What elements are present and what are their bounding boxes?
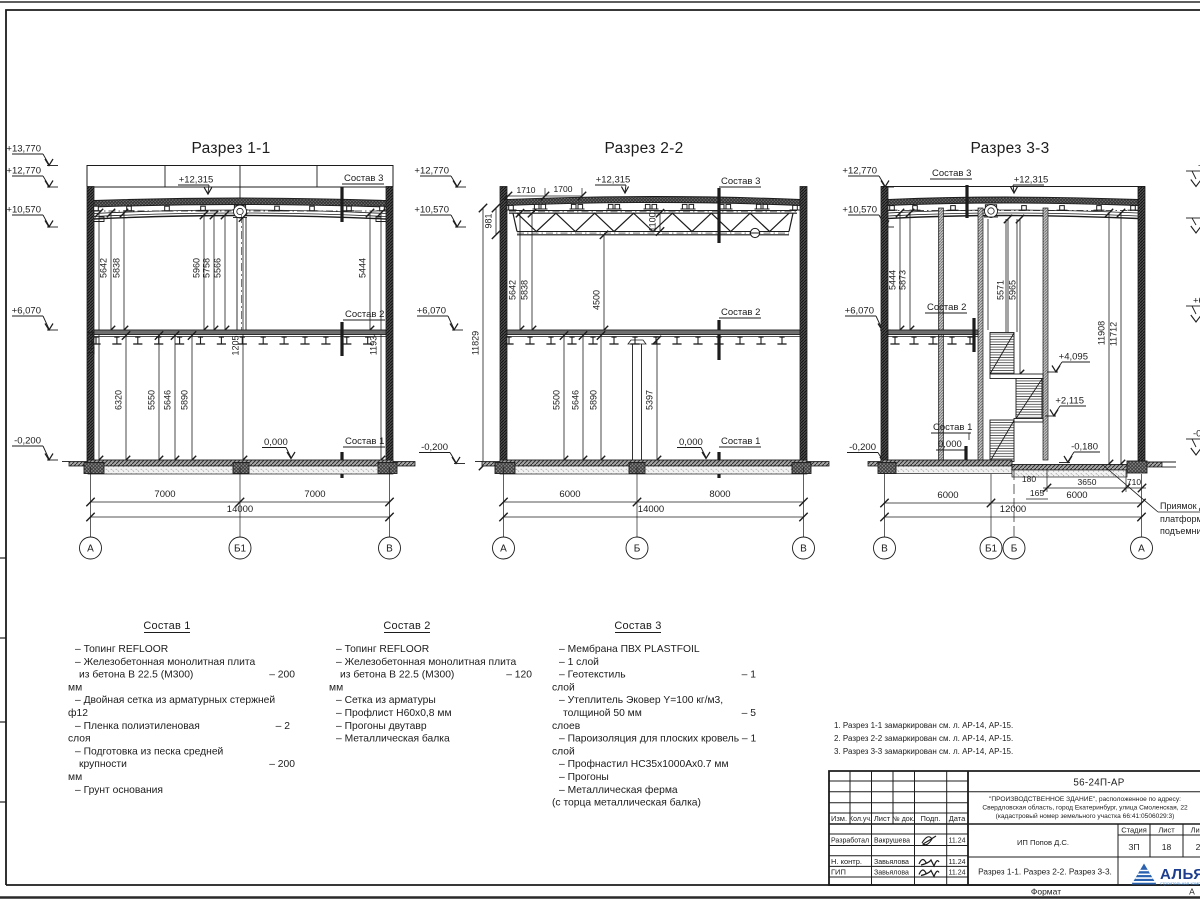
svg-text:6000: 6000: [937, 490, 958, 501]
svg-text:В: В: [800, 543, 807, 554]
svg-text:Дата: Дата: [949, 814, 966, 823]
svg-text:5646: 5646: [571, 390, 581, 410]
svg-text:+6,070: +6,070: [12, 306, 41, 317]
svg-text:12000: 12000: [1000, 504, 1026, 515]
svg-text:– Профлист Н60х0,8 мм: – Профлист Н60х0,8 мм: [336, 707, 452, 719]
svg-text:Состав 1: Состав 1: [345, 436, 384, 447]
svg-text:5397: 5397: [645, 390, 655, 410]
svg-text:5642: 5642: [99, 258, 109, 278]
svg-text:3650: 3650: [1078, 477, 1097, 487]
svg-text:5571: 5571: [996, 280, 1006, 300]
svg-text:Лист: Лист: [1158, 826, 1175, 835]
svg-text:слоев: слоев: [552, 721, 581, 732]
svg-text:Разрез 1-1. Разрез 2-2. Разрез: Разрез 1-1. Разрез 2-2. Разрез 3-3.: [978, 867, 1112, 877]
svg-text:2. Разрез 2-2 замаркирован см.: 2. Разрез 2-2 замаркирован см. л. АР-14,…: [834, 734, 1013, 743]
svg-text:слоя: слоя: [68, 734, 91, 745]
svg-text:5838: 5838: [112, 258, 122, 278]
svg-text:А: А: [1189, 887, 1195, 897]
svg-text:5890: 5890: [589, 390, 599, 410]
svg-text:+12,770: +12,770: [842, 166, 877, 177]
svg-text:1100: 1100: [648, 212, 658, 231]
svg-text:– Пленка полиэтиленовая: – Пленка полиэтиленовая: [75, 721, 200, 732]
svg-text:Лист: Лист: [874, 814, 891, 823]
svg-text:180: 180: [1022, 474, 1036, 484]
svg-text:165: 165: [1030, 488, 1044, 498]
svg-text:Состав 1: Состав 1: [721, 436, 760, 447]
svg-text:Состав 3: Состав 3: [344, 173, 383, 184]
svg-text:11829: 11829: [471, 331, 481, 355]
svg-text:Формат: Формат: [1031, 887, 1061, 897]
svg-text:– 5: – 5: [742, 708, 757, 719]
svg-text:– Прогоны: – Прогоны: [559, 772, 609, 783]
svg-text:из бетона В 22.5 (М300): из бетона В 22.5 (М300): [340, 669, 454, 681]
svg-text:11.24: 11.24: [949, 838, 966, 845]
svg-text:– Профнастил НС35х1000Ах0.7 мм: – Профнастил НС35х1000Ах0.7 мм: [559, 758, 729, 770]
svg-text:– Железобетонная монолитная п: – Железобетонная монолитная плита: [336, 656, 516, 668]
svg-text:– 200: – 200: [269, 759, 295, 770]
svg-text:Разрез 2-2: Разрез 2-2: [604, 140, 683, 157]
svg-text:+2,115: +2,115: [1055, 396, 1084, 407]
svg-text:– Пароизоляция для плоских кро: – Пароизоляция для плоских кровель – 1: [559, 734, 757, 745]
svg-text:-0,200: -0,200: [421, 442, 448, 453]
svg-text:5890: 5890: [180, 390, 190, 410]
svg-text:6000: 6000: [1066, 490, 1087, 501]
svg-text:из бетона В 22.5 (М300): из бетона В 22.5 (М300): [79, 669, 193, 681]
svg-text:крупности: крупности: [79, 759, 127, 770]
svg-text:+6,070: +6,070: [845, 306, 874, 317]
svg-text:Разрез 3-3: Разрез 3-3: [970, 140, 1049, 157]
svg-text:6000: 6000: [559, 489, 580, 500]
svg-text:Кол.уч.: Кол.уч.: [849, 816, 872, 823]
svg-text:+6,070: +6,070: [417, 306, 446, 317]
svg-text:В: В: [386, 543, 393, 554]
svg-text:Б1: Б1: [985, 543, 998, 554]
svg-text:+10,570: +10,570: [414, 205, 449, 216]
svg-text:А: А: [500, 543, 507, 554]
svg-text:Б1: Б1: [234, 543, 247, 554]
svg-text:– Двойная сетка из арматурных: – Двойная сетка из арматурных стержней: [75, 695, 275, 706]
svg-text:11712: 11712: [1109, 322, 1119, 346]
svg-text:Состав 2: Состав 2: [927, 302, 966, 313]
svg-text:– Железобетонная монолитная п: – Железобетонная монолитная плита: [75, 656, 255, 668]
svg-text:1710: 1710: [517, 185, 536, 195]
svg-text:7000: 7000: [154, 489, 175, 500]
svg-text:Лис: Лис: [1191, 826, 1200, 835]
svg-text:Состав 3: Состав 3: [932, 168, 971, 179]
svg-text:18: 18: [1162, 842, 1172, 852]
svg-text:+12,315: +12,315: [596, 175, 631, 186]
svg-text:Состав 2: Состав 2: [383, 620, 430, 632]
svg-text:Состав 2: Состав 2: [721, 307, 760, 318]
svg-text:Подп.: Подп.: [921, 814, 941, 823]
svg-text:ГИП: ГИП: [831, 868, 846, 877]
svg-text:+6,070: +6,070: [1193, 296, 1200, 307]
svg-text:-0,200: -0,200: [1193, 429, 1200, 440]
svg-text:Б: Б: [1011, 543, 1018, 554]
svg-text:6320: 6320: [114, 390, 124, 410]
svg-text:Состав 3: Состав 3: [614, 620, 661, 632]
svg-text:1700: 1700: [554, 184, 573, 194]
svg-text:+12,770: +12,770: [6, 166, 41, 177]
svg-text:– Топинг REFLOOR: – Топинг REFLOOR: [336, 644, 429, 655]
svg-text:– Геотекстиль: – Геотекстиль: [559, 670, 626, 681]
svg-text:3. Разрез 3-3 замаркирован см.: 3. Разрез 3-3 замаркирован см. л. АР-14,…: [834, 747, 1013, 756]
svg-text:Состав 1: Состав 1: [933, 422, 972, 433]
svg-text:– Металлическая балка: – Металлическая балка: [336, 733, 450, 745]
svg-text:8000: 8000: [709, 489, 730, 500]
svg-text:А: А: [87, 543, 94, 554]
svg-text:+12,315: +12,315: [1014, 175, 1049, 186]
svg-text:2: 2: [1196, 842, 1200, 852]
svg-text:Стадия: Стадия: [1121, 826, 1147, 835]
svg-text:Разрез 1-1: Разрез 1-1: [191, 140, 270, 157]
svg-text:платформы: платформы: [1160, 514, 1200, 524]
svg-text:слой: слой: [552, 682, 575, 693]
svg-text:11908: 11908: [1097, 321, 1107, 345]
svg-text:5500: 5500: [552, 390, 562, 410]
svg-text:14000: 14000: [638, 504, 664, 515]
svg-text:5646: 5646: [163, 390, 173, 410]
svg-text:– 1: – 1: [742, 670, 757, 681]
svg-text:– Прогоны двутавр: – Прогоны двутавр: [336, 721, 427, 732]
svg-text:А: А: [1138, 543, 1145, 554]
svg-text:– Мембрана ПВХ PLASTFOIL: – Мембрана ПВХ PLASTFOIL: [559, 643, 700, 655]
svg-text:0,000: 0,000: [264, 437, 288, 448]
svg-text:Вакрушева: Вакрушева: [874, 838, 910, 845]
svg-text:– Топинг REFLOOR: – Топинг REFLOOR: [75, 644, 168, 655]
svg-text:(кадастровый номер земельного: (кадастровый номер земельного участка 66…: [996, 812, 1175, 820]
svg-text:+13,770: +13,770: [6, 144, 41, 155]
svg-text:– 2: – 2: [276, 721, 291, 732]
svg-text:-0,180: -0,180: [1071, 442, 1098, 453]
svg-text:11.24: 11.24: [949, 859, 966, 866]
svg-text:Завьялова: Завьялова: [874, 859, 909, 866]
svg-text:Приямок дл: Приямок дл: [1160, 501, 1200, 511]
svg-text:Изм.: Изм.: [831, 814, 847, 823]
svg-text:– 200: – 200: [269, 670, 295, 681]
svg-text:Н. контр.: Н. контр.: [831, 857, 862, 866]
svg-text:+10,570: +10,570: [842, 205, 877, 216]
svg-text:5444: 5444: [888, 270, 898, 290]
svg-text:7000: 7000: [304, 489, 325, 500]
svg-text:5960: 5960: [192, 258, 202, 278]
svg-text:– Сетка из арматуры: – Сетка из арматуры: [336, 695, 436, 706]
svg-text:5873: 5873: [898, 270, 908, 290]
svg-text:– Металлическая ферма: – Металлическая ферма: [559, 784, 678, 796]
svg-text:строительная компания: строительная компания: [1160, 881, 1200, 886]
svg-text:710: 710: [1127, 477, 1141, 487]
svg-text:5965: 5965: [1008, 280, 1018, 300]
svg-text:Состав 3: Состав 3: [721, 176, 760, 187]
svg-text:толщиной 50 мм: толщиной 50 мм: [563, 708, 642, 719]
svg-text:В: В: [881, 543, 888, 554]
svg-text:5758: 5758: [202, 258, 212, 278]
svg-text:Б: Б: [634, 543, 641, 554]
svg-text:– Грунт основания: – Грунт основания: [75, 785, 163, 796]
svg-text:Разработал: Разработал: [831, 837, 869, 845]
svg-text:Состав 1: Состав 1: [143, 620, 190, 632]
svg-text:5444: 5444: [358, 258, 368, 278]
svg-text:мм: мм: [68, 772, 82, 783]
svg-text:56-24П-АР: 56-24П-АР: [1073, 778, 1124, 789]
svg-text:– 1 слой: – 1 слой: [559, 657, 599, 668]
svg-text:5550: 5550: [147, 390, 157, 410]
svg-text:(с торца металлическая балка): (с торца металлическая балка): [552, 797, 701, 809]
svg-text:0,000: 0,000: [938, 439, 962, 450]
svg-text:ИП Попов Д.С.: ИП Попов Д.С.: [1017, 838, 1069, 847]
svg-text:981: 981: [484, 213, 494, 228]
svg-text:5642: 5642: [508, 280, 518, 300]
svg-text:11.24: 11.24: [949, 870, 966, 877]
svg-text:№ док.: № док.: [892, 816, 914, 823]
svg-text:ЗП: ЗП: [1128, 842, 1139, 852]
svg-text:5838: 5838: [520, 280, 530, 300]
svg-text:0,000: 0,000: [679, 437, 703, 448]
svg-text:Свердловская область, город Ек: Свердловская область, город Екатеринбург…: [982, 804, 1188, 812]
svg-text:подъемника: подъемника: [1160, 526, 1200, 536]
svg-text:+10,570: +10,570: [6, 205, 41, 216]
svg-text:-0,200: -0,200: [849, 442, 876, 453]
svg-text:+4,095: +4,095: [1059, 352, 1088, 363]
svg-text:– Подготовка из песка средней: – Подготовка из песка средней: [75, 746, 224, 757]
svg-text:ф12: ф12: [68, 707, 88, 719]
svg-text:-0,200: -0,200: [14, 436, 41, 447]
svg-text:"ПРОИЗВОДСТВЕННОЕ ЗДАНИЕ", рас: "ПРОИЗВОДСТВЕННОЕ ЗДАНИЕ", расположенное…: [989, 796, 1181, 803]
svg-text:+12,770: +12,770: [414, 166, 449, 177]
svg-text:4500: 4500: [592, 290, 602, 310]
svg-text:Состав 2: Состав 2: [345, 309, 384, 320]
svg-text:+12,315: +12,315: [179, 175, 214, 186]
svg-text:5566: 5566: [213, 258, 223, 278]
svg-text:мм: мм: [68, 682, 82, 693]
svg-text:слой: слой: [552, 746, 575, 757]
svg-text:– 120: – 120: [506, 670, 532, 681]
svg-text:мм: мм: [329, 682, 343, 693]
svg-text:– Утеплитель Эковер Y=100 кг/м: – Утеплитель Эковер Y=100 кг/м3,: [559, 695, 723, 706]
svg-text:Завьялова: Завьялова: [874, 870, 909, 877]
svg-text:1. Разрез 1-1 замаркирован см.: 1. Разрез 1-1 замаркирован см. л. АР-14,…: [834, 721, 1013, 730]
